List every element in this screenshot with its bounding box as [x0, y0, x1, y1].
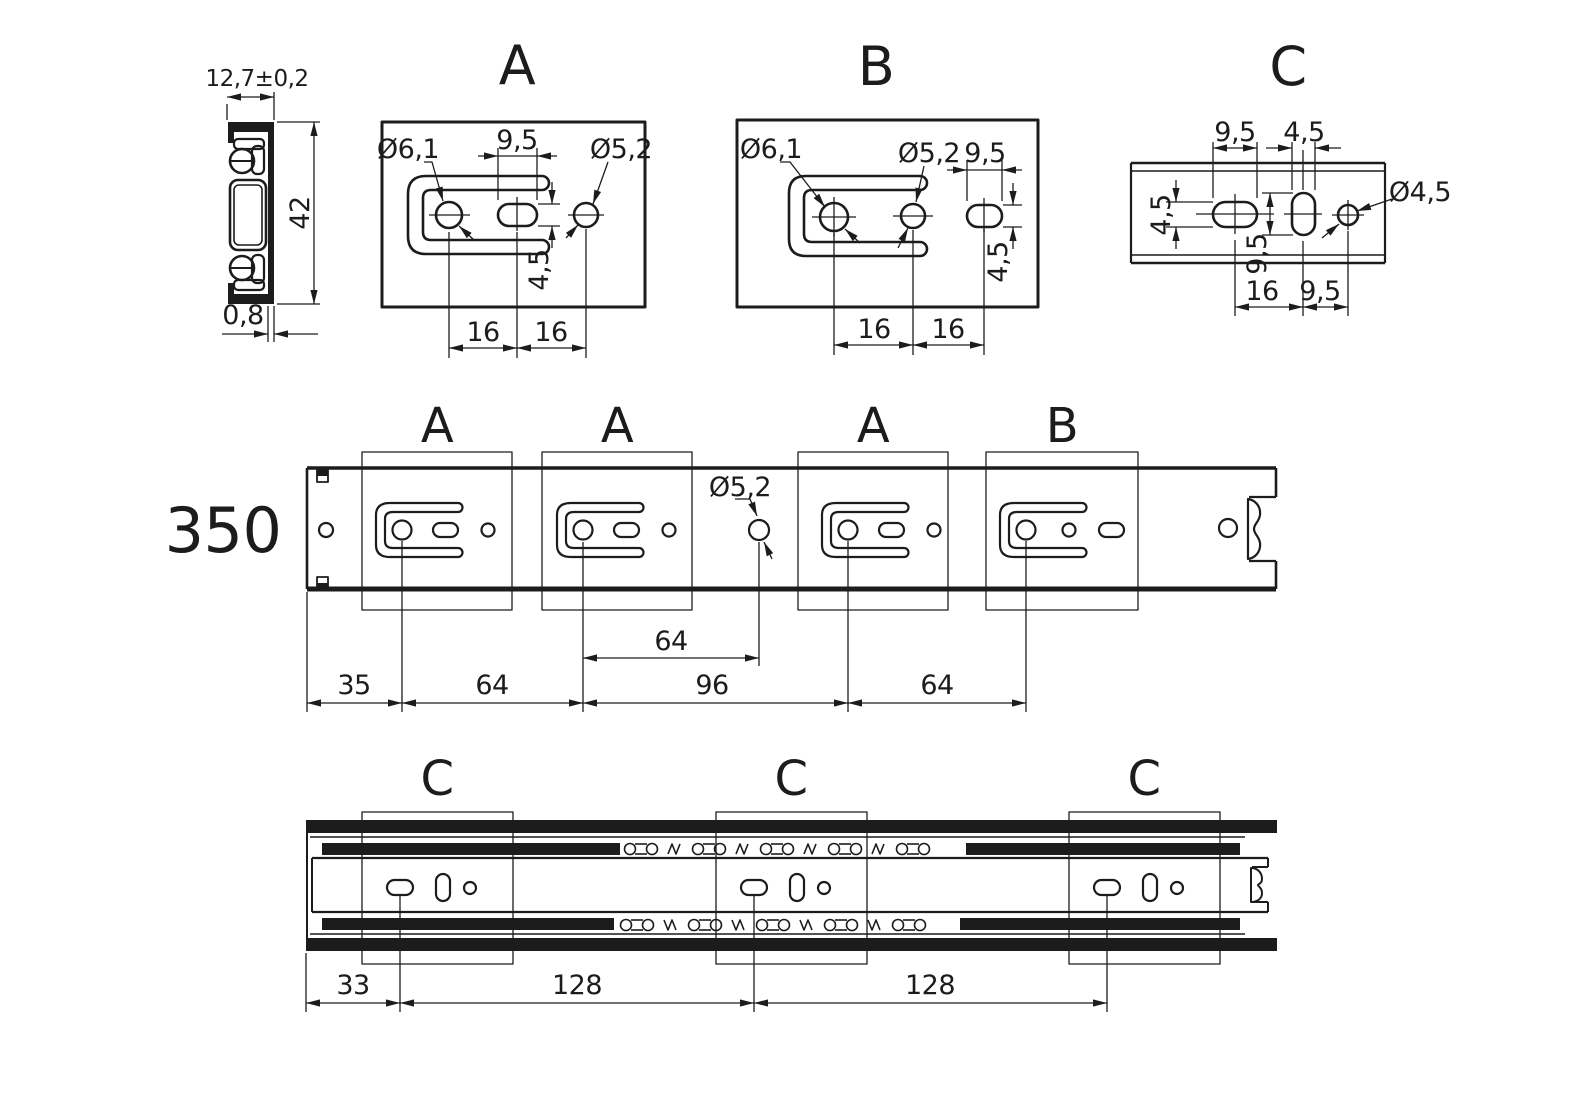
outer-rail-top [306, 820, 1277, 833]
outer-wall [268, 122, 274, 304]
hole-pattern-a [557, 503, 676, 557]
cross-section-view: 12,7±0,2 42 0,8 [205, 66, 320, 342]
dim-slot-width: 9,5 [1214, 117, 1255, 148]
section-label: C [774, 751, 807, 807]
dim-oval-width: 4,5 [1283, 117, 1324, 148]
drawing-sheet: 12,7±0,2 42 0,8 A Ø6,1 Ø5,2 [0, 0, 1587, 1119]
dim-chain: 128 [552, 970, 602, 1001]
section-label: C [420, 751, 453, 807]
section-box-a3 [798, 452, 948, 610]
dim-width: 12,7±0,2 [205, 66, 308, 92]
hole-pattern-a [376, 503, 495, 557]
dim-oval-height: 9,5 [1242, 233, 1273, 274]
dim-pitch: 16 [534, 317, 567, 348]
dim-slot-width: 9,5 [496, 125, 537, 156]
label-hole-6-1: Ø6,1 [740, 134, 802, 165]
free-hole-5-2 [749, 520, 769, 540]
section-label: A [601, 398, 634, 454]
detail-b-view: B Ø6,1 Ø5,2 9,5 4,5 [737, 35, 1038, 355]
top-flange [228, 122, 274, 132]
latch-end [1248, 499, 1260, 559]
dim-chain: 64 [475, 670, 508, 701]
end-hole [1219, 519, 1237, 537]
label-hole-5-2: Ø5,2 [590, 134, 652, 165]
rail-length-label: 350 [165, 494, 282, 567]
dim-chain: 96 [695, 670, 728, 701]
detail-a-view: A Ø6,1 Ø5,2 9,5 4,5 [377, 34, 652, 358]
section-label: A [857, 398, 890, 454]
detail-c-title: C [1269, 35, 1306, 98]
section-label: C [1127, 751, 1160, 807]
dim-thickness: 0,8 [222, 300, 263, 331]
dim-slot-height: 4,5 [524, 249, 555, 290]
dim-pitch: 16 [857, 314, 890, 345]
dim-pitch: 9,5 [1299, 276, 1340, 307]
dim-chain: 64 [920, 670, 953, 701]
dim-chain: 128 [905, 970, 955, 1001]
outer-rail-bottom [306, 938, 1277, 951]
end-hole [319, 523, 333, 537]
label-hole-5-2: Ø5,2 [898, 138, 960, 169]
detail-a-title: A [499, 34, 536, 97]
dim-chain: 33 [336, 970, 369, 1001]
dim-slot-height: 4,5 [1146, 194, 1177, 235]
section-label: A [421, 398, 454, 454]
detail-c-view: C 9,5 4,5 4,5 [1131, 35, 1451, 316]
dim-upper: 64 [654, 626, 687, 657]
dim-pitch: 16 [931, 314, 964, 345]
ball-retainer-row-upper [625, 844, 930, 855]
latch-end [1251, 868, 1262, 902]
dim-pitch: 16 [466, 317, 499, 348]
u-slot [408, 176, 542, 254]
section-label: B [1046, 398, 1078, 454]
inner-member [230, 180, 266, 250]
detail-b-title: B [858, 35, 895, 98]
dim-height: 42 [285, 196, 316, 229]
dim-slot-width: 9,5 [964, 138, 1005, 169]
dim-pitch: 16 [1245, 276, 1278, 307]
hole-pattern-b [1000, 503, 1124, 557]
technical-drawing: 12,7±0,2 42 0,8 A Ø6,1 Ø5,2 [0, 0, 1587, 1119]
label-hole-4-5: Ø4,5 [1389, 177, 1451, 208]
inner-rail-view: 350 A A A B [165, 398, 1276, 712]
hole-pattern-a [822, 503, 941, 557]
assembled-rail-view: C C C 33 128 128 [306, 751, 1277, 1012]
dim-chain: 35 [337, 670, 370, 701]
dim-slot-height: 4,5 [983, 241, 1014, 282]
label-hole-6-1: Ø6,1 [377, 134, 439, 165]
ball-retainer-row-lower [621, 920, 926, 931]
